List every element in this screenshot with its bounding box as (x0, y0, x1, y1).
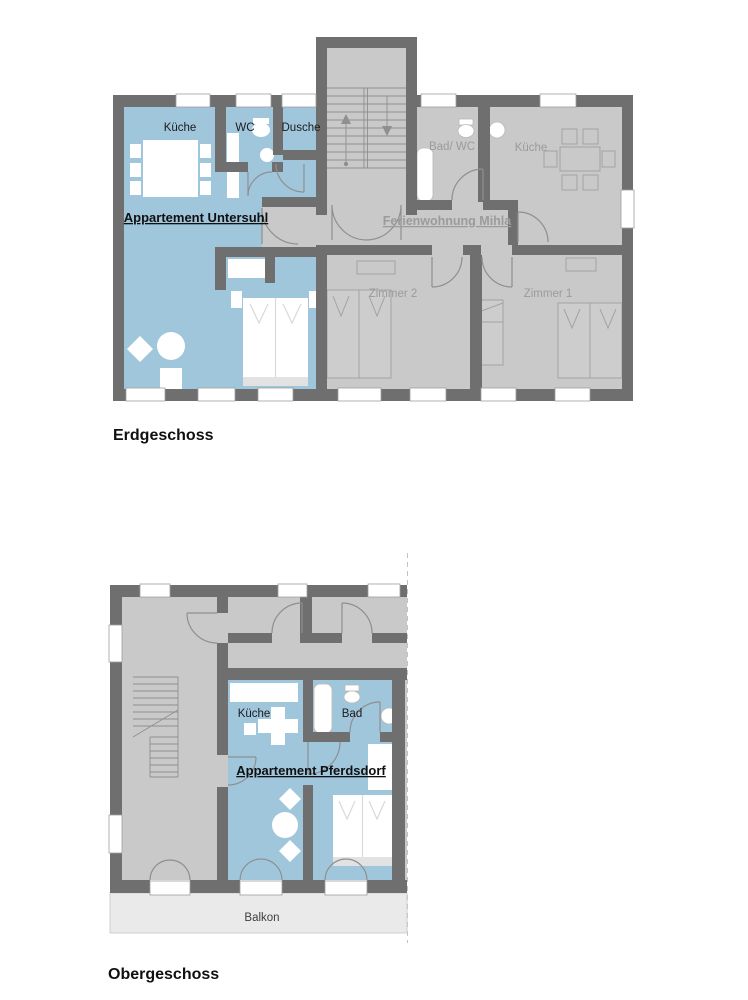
floor-title-obergeschoss: Obergeschoss (108, 966, 219, 983)
double-bed-untersuhl (231, 291, 319, 386)
label-wc: WC (235, 122, 254, 134)
label-appartement-pferdsdorf: Appartement Pferdsdorf (236, 763, 386, 778)
label-bad: Bad (342, 708, 362, 720)
label-bad-wc: Bad/ WC (429, 141, 475, 153)
label-appartement-untersuhl: Appartement Untersuhl (124, 210, 268, 225)
erdgeschoss-plan: Küche WC Dusche Appartement Untersuhl Ba… (113, 37, 634, 444)
label-zimmer2: Zimmer 2 (369, 288, 418, 300)
obergeschoss-plan: Küche Bad Appartement Pferdsdorf Balkon … (108, 553, 408, 983)
floorplan-svg: Küche WC Dusche Appartement Untersuhl Ba… (0, 0, 748, 1000)
label-zimmer1: Zimmer 1 (524, 288, 573, 300)
label-kueche-mihla: Küche (515, 142, 548, 154)
stair-start-dot (344, 162, 348, 166)
stairwell-area (327, 48, 406, 108)
hall-closet (228, 259, 266, 278)
label-balkon: Balkon (244, 912, 279, 924)
label-kueche-pferdsdorf: Küche (238, 708, 271, 720)
floor-title-erdgeschoss: Erdgeschoss (113, 427, 214, 444)
label-ferienwohnung-mihla: Ferienwohnung Mihla (383, 214, 513, 228)
kitchen-counter-pferdsdorf (230, 683, 298, 702)
label-kueche-untersuhl: Küche (164, 122, 197, 134)
floorplan-canvas: Küche WC Dusche Appartement Untersuhl Ba… (0, 0, 748, 1000)
label-dusche: Dusche (282, 122, 321, 134)
